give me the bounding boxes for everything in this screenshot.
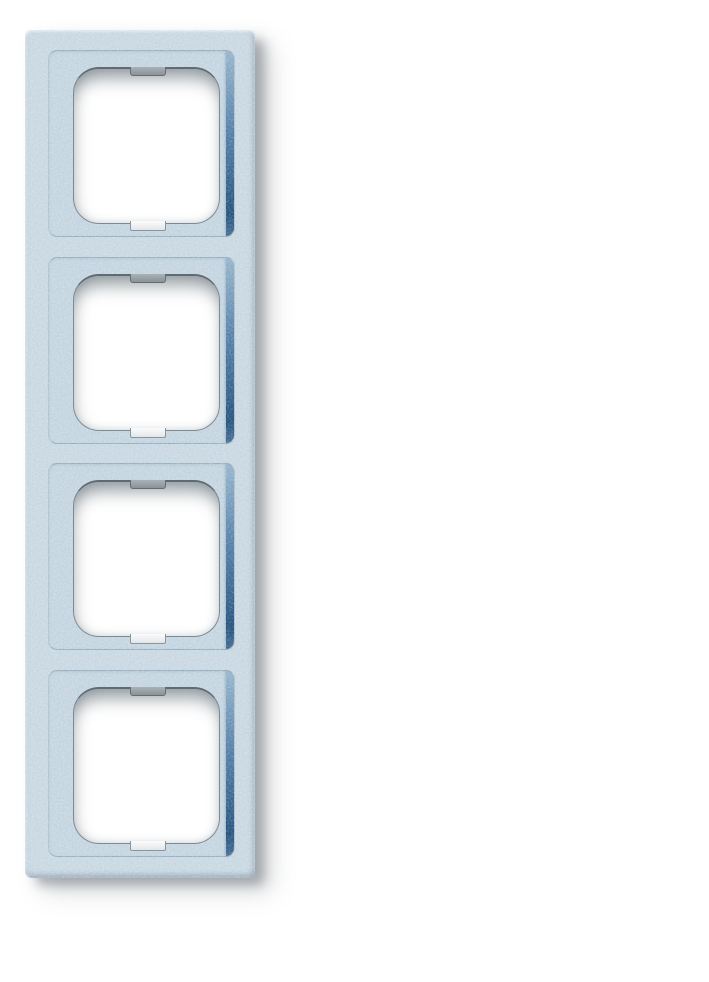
module-opening — [73, 67, 220, 224]
frame-module-4 — [48, 670, 235, 857]
switch-frame — [25, 30, 255, 878]
alignment-tab — [130, 67, 166, 76]
alignment-notch — [130, 221, 166, 231]
recess-shadow — [226, 671, 234, 856]
recess-shadow — [226, 464, 234, 649]
product-photo — [0, 0, 709, 982]
recess-shadow — [226, 51, 234, 236]
frame-module-3 — [48, 463, 235, 650]
module-opening — [73, 274, 220, 431]
alignment-tab — [130, 480, 166, 489]
module-opening — [73, 687, 220, 844]
module-opening — [73, 480, 220, 637]
alignment-notch — [130, 634, 166, 644]
alignment-notch — [130, 428, 166, 438]
alignment-tab — [130, 687, 166, 696]
frame-module-2 — [48, 257, 235, 444]
alignment-tab — [130, 274, 166, 283]
recess-shadow — [226, 258, 234, 443]
alignment-notch — [130, 841, 166, 851]
frame-module-1 — [48, 50, 235, 237]
